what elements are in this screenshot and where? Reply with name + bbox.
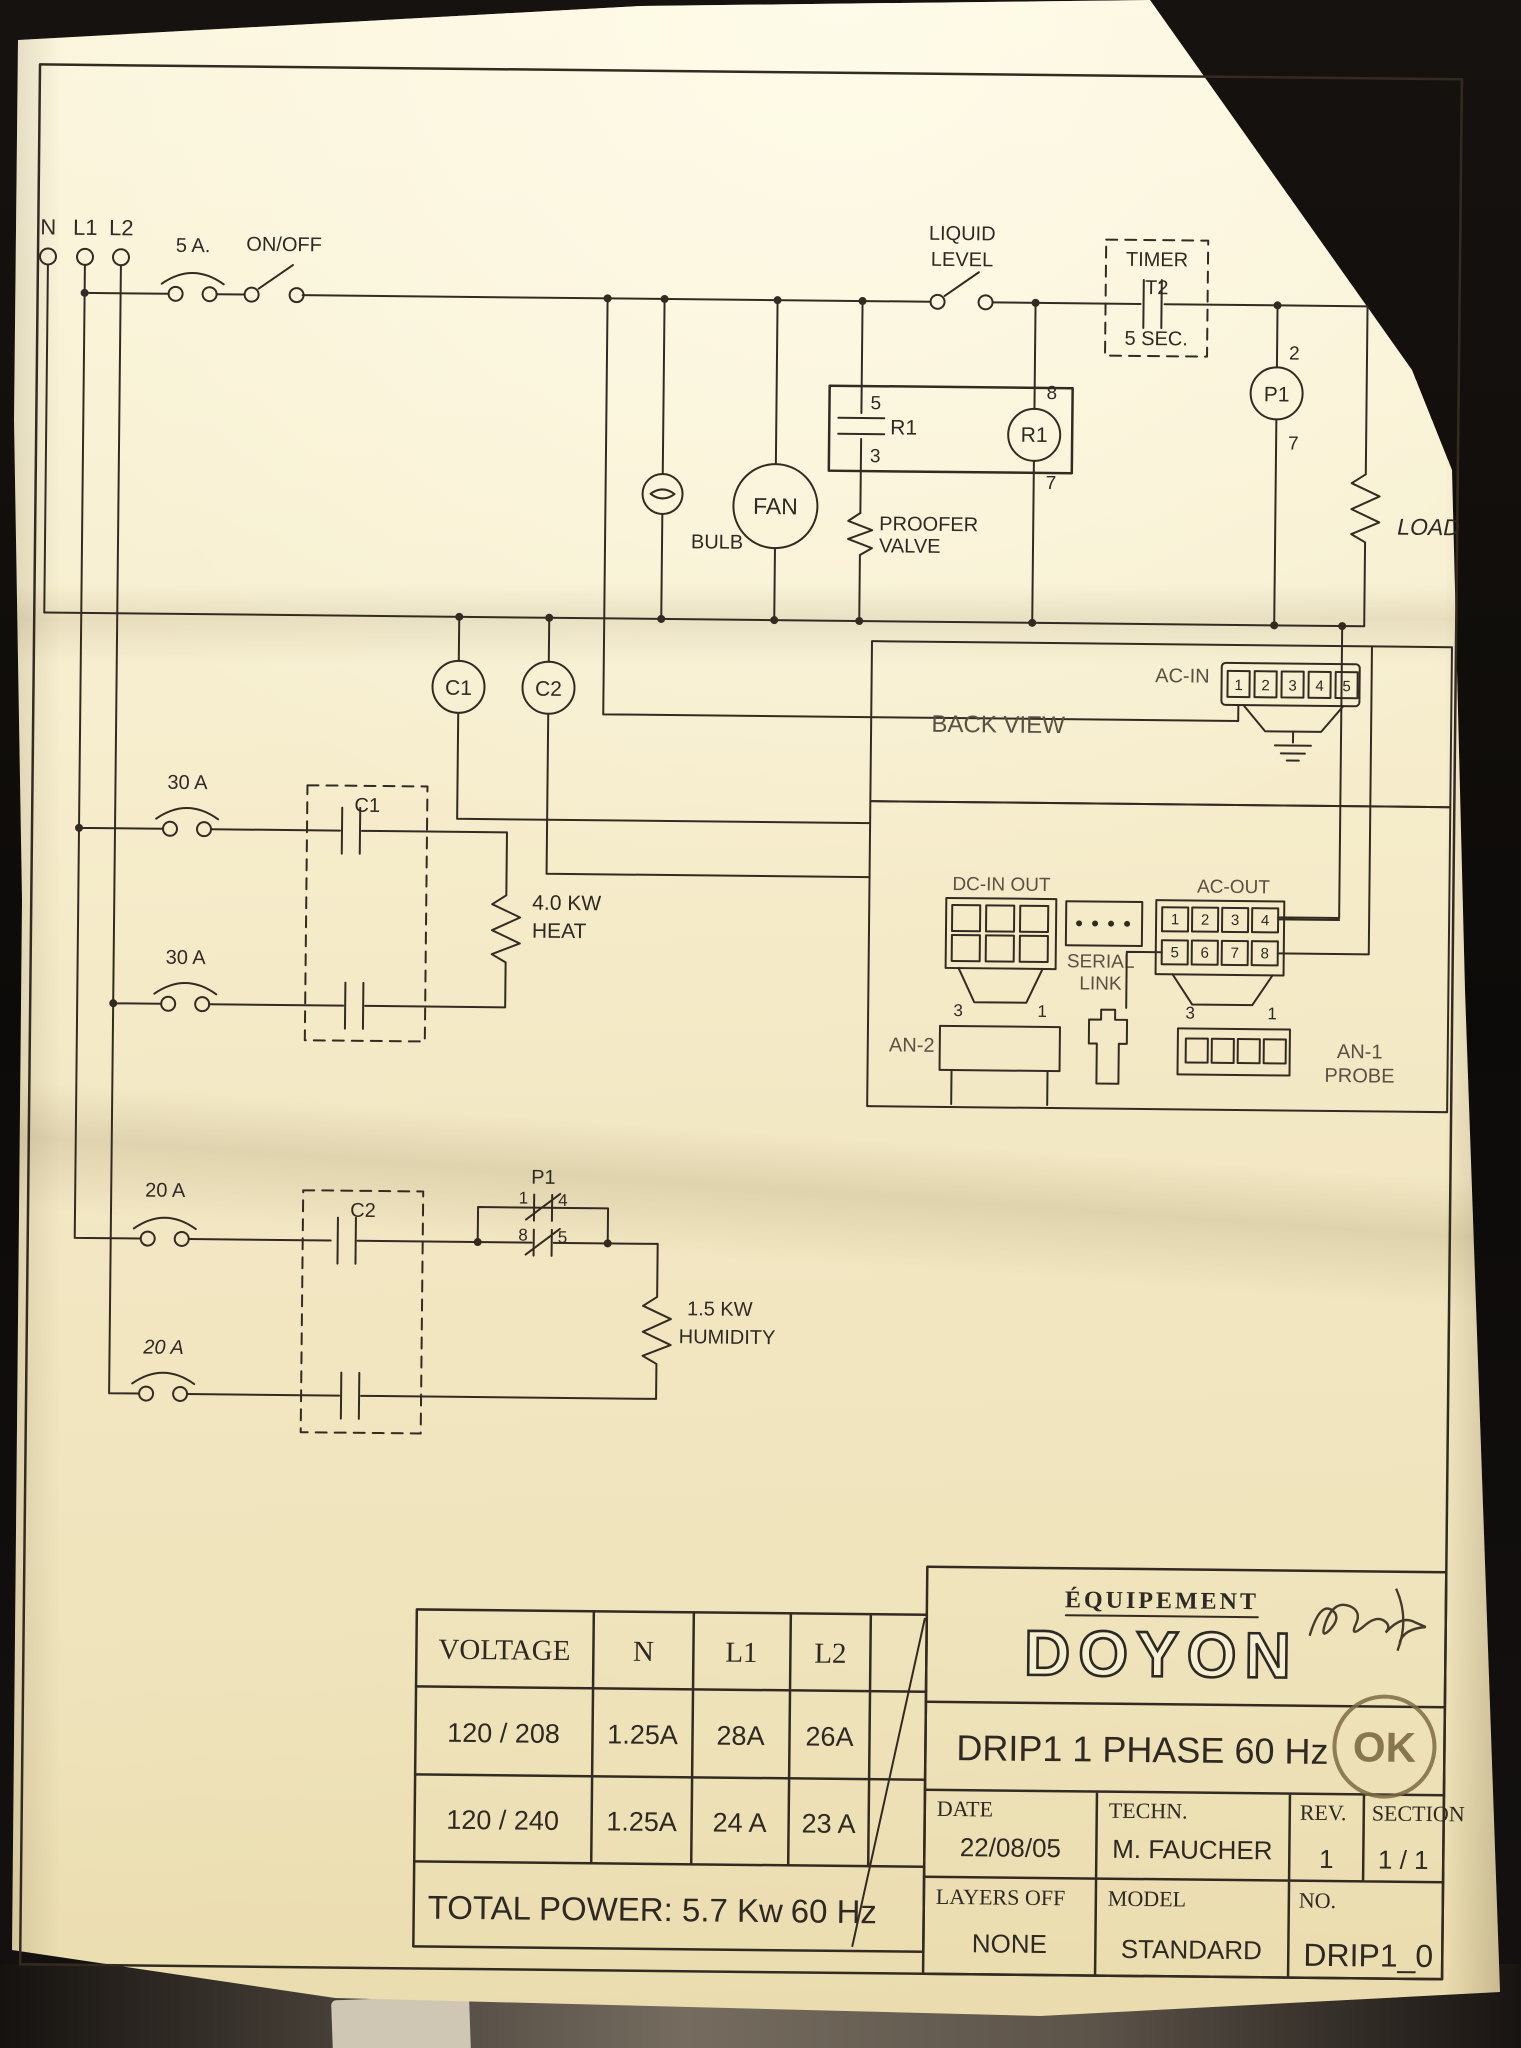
ac-in-label: AC-IN [1155, 665, 1210, 688]
wiring-diagram: N L1 L2 5 A. ON/OFF [0, 0, 1521, 2048]
model-label: MODEL [1108, 1886, 1186, 1912]
c1-contactor-box [305, 785, 428, 1041]
p1-pin-top: 2 [1289, 343, 1300, 364]
an1-label-1: AN-1 [1337, 1041, 1383, 1063]
r1-coil-pin-top: 8 [1047, 383, 1058, 404]
valve-label-2: VALVE [879, 535, 941, 558]
terminal-l1-label: L1 [73, 215, 98, 240]
rail-wire [85, 293, 1368, 306]
c1-coil-label: C1 [445, 677, 472, 700]
ok-stamp-text: OK [1353, 1723, 1416, 1771]
title-block: ÉQUIPEMENT DOYON DRIP1 1 PHASE 60 Hz OK … [923, 1567, 1467, 1980]
fuse-circle [141, 1232, 155, 1246]
dc-pin [952, 905, 980, 931]
junction [770, 616, 778, 624]
key-shape [1088, 1009, 1127, 1083]
humidity-load-label-2: HUMIDITY [679, 1326, 776, 1349]
an1-pin [1238, 1039, 1260, 1063]
p1-wire [1274, 305, 1277, 625]
dc-funnel [958, 968, 1042, 1003]
no-label: NO. [1299, 1888, 1337, 1913]
cell: 23 A [801, 1808, 855, 1839]
bulb-wire [661, 299, 664, 619]
ac-out-n1: 1 [1171, 911, 1180, 928]
rev-label: REV. [1300, 1800, 1347, 1825]
col-voltage: VOLTAGE [438, 1634, 570, 1667]
humidity-load-label-1: 1.5 KW [687, 1298, 753, 1321]
fuse-circle [163, 822, 177, 836]
an2-block [940, 1026, 1060, 1071]
fuse-circle [175, 1232, 189, 1246]
ac-in-n4: 4 [1315, 678, 1324, 695]
table-row-lines [414, 1686, 926, 1866]
bulb: BULB [641, 299, 745, 620]
fuse-arc [154, 983, 216, 995]
heat-load-label-2: HEAT [532, 920, 587, 944]
fuse-20a-top-label: 20 A [145, 1180, 186, 1202]
p1-pin-1: 1 [519, 1188, 529, 1207]
serial-dot [1108, 921, 1114, 927]
relay-r1: 5 R1 3 PROOFER VALVE R1 8 7 [827, 301, 1073, 624]
ac-in-n2: 2 [1261, 677, 1270, 694]
an2-label: AN-2 [889, 1034, 935, 1056]
serial-dot [1092, 920, 1098, 926]
fuse-circle [139, 1387, 153, 1401]
drawing-border [20, 64, 1462, 1979]
section-value: 1 / 1 [1378, 1845, 1429, 1876]
an1-pin [1186, 1038, 1208, 1062]
heat-circuit: 30 A 30 A C1 4.0 KW HEAT [154, 772, 603, 1044]
dc-pin [986, 905, 1014, 931]
fuse-arc [132, 1372, 194, 1384]
fuse-5a-right [203, 287, 217, 301]
p1-pin-8: 8 [518, 1225, 528, 1244]
an2-stubs [951, 1070, 1047, 1105]
cell: 28A [716, 1721, 764, 1752]
control-rail: 5 A. ON/OFF LIQUID LEVEL TIMER T2 5 SEC. [84, 214, 1368, 358]
junction [75, 824, 83, 832]
r1-coil-pin-bottom: 7 [1046, 473, 1057, 494]
serial-label-1: SERIAL [1067, 951, 1135, 973]
timer-label-2: T2 [1145, 277, 1169, 299]
liquid-level-right [978, 295, 992, 309]
r1-contact-name: R1 [890, 416, 917, 439]
doyon-logo: DOYON [1024, 1617, 1299, 1692]
p1-name: P1 [1264, 383, 1290, 406]
techn-label: TECHN. [1109, 1798, 1188, 1824]
ac-out4-stub [1278, 919, 1339, 920]
dc-pin [986, 935, 1014, 961]
board-feed-wire [603, 298, 1242, 721]
fuse-20a-bottom-label: 20 A [142, 1337, 184, 1359]
fan-wire [774, 300, 777, 620]
col-n: N [633, 1636, 654, 1668]
model-value: STANDARD [1121, 1934, 1262, 1965]
ac-in-funnel [1243, 705, 1343, 743]
signature [1309, 1588, 1426, 1651]
onoff-left [245, 288, 259, 302]
serial-dot [1076, 920, 1082, 926]
an1-pin [1212, 1039, 1234, 1063]
equipement-text: ÉQUIPEMENT [1065, 1587, 1259, 1615]
p1-pin-bottom: 7 [1288, 433, 1299, 454]
r1-coil-name: R1 [1021, 424, 1048, 447]
fuse-circle [161, 997, 175, 1011]
ac-in5-riser [1278, 625, 1342, 918]
humidity-circuit: 20 A P1 1 4 8 5 20 A C2 1.5 KW HUM [132, 1162, 777, 1437]
col-l1: L1 [725, 1637, 758, 1669]
neutral-wire [44, 612, 1364, 626]
bulb-label: BULB [691, 531, 743, 554]
ac-in-n1: 1 [1234, 677, 1243, 694]
neutral-rail: C1 C2 [42, 608, 1365, 882]
bulb-filament [650, 489, 674, 498]
fuse-5a-arc [162, 273, 224, 285]
terminal-n-label: N [40, 214, 56, 239]
p1-pin-4: 4 [558, 1191, 568, 1210]
ac-out-n6: 6 [1201, 945, 1210, 962]
p1-and-load: P1 2 7 LOAD [1248, 305, 1462, 627]
an2-pin-1: 1 [1037, 1002, 1047, 1021]
fuse-5a-left [169, 287, 183, 301]
dc-pin [1020, 906, 1048, 932]
liquid-level-left [930, 295, 944, 309]
r1-contact-pin-bottom: 3 [870, 446, 881, 467]
p1-block-frame [478, 1207, 608, 1243]
an2-pin-3: 3 [953, 1001, 963, 1020]
fuse-arc [134, 1217, 196, 1229]
ground-icon [1275, 745, 1311, 760]
timer-label-3: 5 SEC. [1124, 328, 1188, 351]
c2-box-label: C2 [350, 1200, 376, 1222]
an1-label-2: PROBE [1324, 1065, 1394, 1088]
date-label: DATE [937, 1796, 993, 1822]
liquid-level-blade [945, 272, 979, 296]
load-resistor [1350, 306, 1381, 626]
an1-pin-3: 3 [1185, 1003, 1195, 1022]
fuse-30a-top-label: 30 A [167, 772, 208, 794]
col-l2: L2 [814, 1638, 847, 1670]
wire-l1 [75, 265, 169, 1239]
ac-in-n3: 3 [1288, 678, 1297, 695]
fuse-30a-bottom-label: 30 A [166, 947, 207, 969]
dc-block [946, 898, 1057, 969]
terminal-l1 [77, 249, 93, 265]
junction [657, 615, 665, 623]
ac-out-n4: 4 [1261, 912, 1270, 929]
r1-contact-pin-top: 5 [870, 393, 881, 414]
ac-out-n7: 7 [1231, 945, 1240, 962]
fuse-circle [197, 822, 211, 836]
ac-out-n2: 2 [1201, 912, 1210, 929]
section-label: SECTION [1372, 1800, 1465, 1826]
controller-board: BACK VIEW AC-IN 1 2 3 4 5 DC-IN OUT [867, 621, 1452, 1112]
junction [855, 617, 863, 625]
fuse-circle [173, 1387, 187, 1401]
fuse-5a-label: 5 A. [176, 235, 211, 257]
cell: 26A [805, 1722, 853, 1753]
date-value: 22/08/05 [960, 1832, 1062, 1863]
c1-coil-wire [457, 617, 872, 823]
dc-pin [952, 935, 980, 961]
junction [1270, 621, 1278, 629]
bulb-symbol [642, 474, 682, 514]
cell: 120 / 208 [447, 1718, 560, 1749]
c2-coil-wire [547, 618, 873, 877]
wire-n [44, 264, 48, 612]
liquid-level-label-2: LEVEL [931, 249, 993, 272]
techn-value: M. FAUCHER [1112, 1834, 1273, 1866]
fan: FAN [732, 300, 819, 621]
supply-terminals: N L1 L2 [28, 214, 169, 1393]
dc-pin [1020, 936, 1048, 962]
valve-label-1: PROOFER [879, 513, 978, 536]
heat-load-label-1: 4.0 KW [532, 892, 601, 916]
an1-pin-1: 1 [1267, 1004, 1277, 1023]
p1-block-label: P1 [531, 1167, 556, 1189]
total-power: TOTAL POWER: 5.7 Kw [428, 1889, 784, 1930]
cell: 24 A [712, 1808, 766, 1839]
terminal-l2 [113, 249, 129, 265]
layers-value: NONE [972, 1928, 1047, 1959]
ac-in-n5: 5 [1342, 678, 1351, 695]
cell: 1.25A [607, 1719, 678, 1750]
onoff-right [290, 288, 304, 302]
serial-label-2: LINK [1079, 973, 1122, 994]
humidity-wiring [187, 1239, 672, 1422]
terminal-l2-label: L2 [109, 215, 134, 240]
r1-coil-wire [1032, 303, 1035, 623]
dc-in-out-label: DC-IN OUT [952, 874, 1051, 896]
junction [1028, 619, 1036, 627]
rev-value: 1 [1319, 1844, 1334, 1874]
c2-coil-label: C2 [535, 678, 562, 701]
timer-label-1: TIMER [1126, 249, 1188, 272]
fuse-arc [156, 808, 218, 820]
fan-label: FAN [753, 493, 798, 519]
liquid-level-label-1: LIQUID [929, 223, 996, 246]
heat-wiring [209, 806, 521, 1030]
serial-dot [1124, 921, 1130, 927]
onoff-blade [259, 265, 293, 289]
no-value: DRIP1_0 [1303, 1937, 1433, 1974]
terminal-n [40, 248, 56, 264]
an1-pin [1264, 1039, 1286, 1063]
layers-label: LAYERS OFF [936, 1884, 1066, 1910]
proofer-valve-symbol [847, 513, 872, 621]
p1-pin-5: 5 [558, 1228, 568, 1247]
ac-out-funnel [1172, 974, 1272, 1005]
photo-of-schematic: N L1 L2 5 A. ON/OFF [0, 0, 1521, 2048]
fuse-circle [195, 997, 209, 1011]
junction [474, 1238, 482, 1246]
onoff-label: ON/OFF [246, 234, 322, 257]
drawing-title: DRIP1 1 PHASE 60 Hz [956, 1727, 1329, 1772]
ratings-table: VOLTAGE N L1 L2 120 / 208 1.25A 28A 26A … [413, 1609, 927, 1951]
cell: 1.25A [606, 1806, 677, 1837]
junction [109, 999, 117, 1007]
cell: 120 / 240 [446, 1805, 559, 1836]
junction [604, 1239, 612, 1247]
ac-out-n5: 5 [1171, 944, 1180, 961]
load-label: LOAD [1397, 514, 1460, 541]
ac-out-n8: 8 [1261, 945, 1270, 962]
frequency: 60 Hz [791, 1892, 878, 1930]
back-view-label: BACK VIEW [931, 711, 1065, 739]
ac-out-label: AC-OUT [1197, 877, 1270, 899]
c1-box-label: C1 [354, 795, 380, 817]
ac-out-n3: 3 [1231, 912, 1240, 929]
